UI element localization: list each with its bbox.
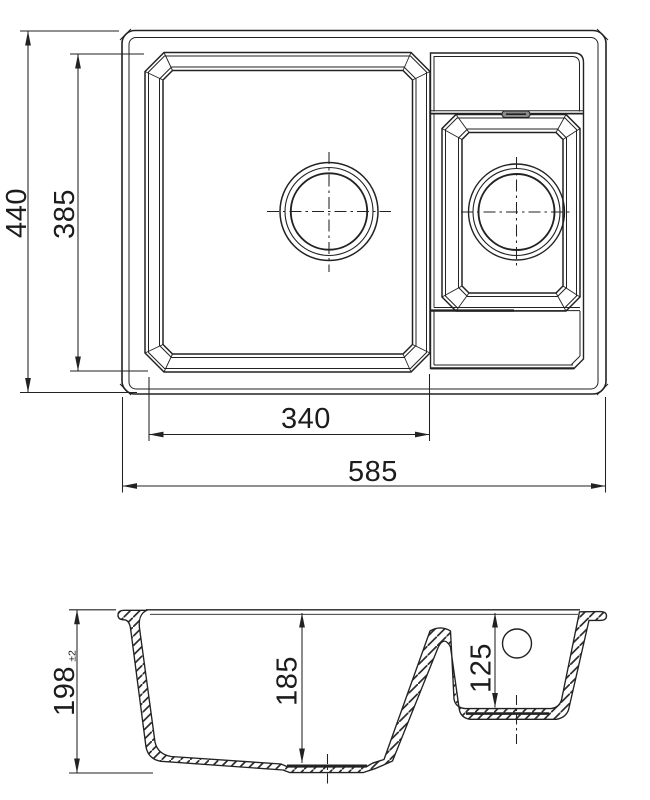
half-bowl-unit-outline [431,53,584,369]
section-view [69,610,607,785]
dim-label-overall-height: 198 [49,666,81,716]
main-bowl-outline [145,53,430,373]
dim-label-inner-depth: 385 [49,189,81,239]
overflow-hole [503,629,532,658]
dim-label-height-tolerance: ±2 [67,650,79,662]
dim-label-half-bowl-depth: 125 [466,643,498,693]
dim-label-main-bowl-depth: 185 [272,656,304,706]
lower-shelf [431,308,581,369]
dim-label-overall-depth: 440 [1,188,33,238]
dim-label-overall-width: 585 [348,456,398,488]
technical-drawing-page: 440 385 340 585 198 ±2 185 125 [0,0,650,800]
main-bowl-corner-facets [145,53,430,373]
drainer-shelf-inner [434,57,580,112]
dimension-labels: 440 385 340 585 198 ±2 185 125 [1,188,498,716]
half-bowl-unit [431,53,584,369]
sink-technical-drawing: 440 385 340 585 198 ±2 185 125 [0,0,650,800]
dim-label-main-bowl-width: 340 [281,403,331,435]
sink-rim-inner [129,38,598,390]
section-shell [118,610,607,772]
